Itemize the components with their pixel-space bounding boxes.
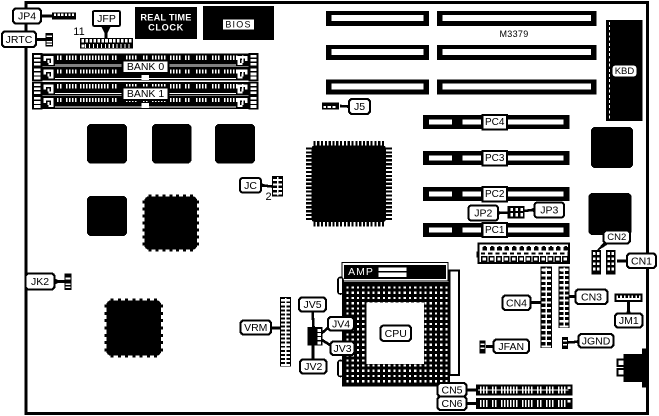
svg-text:VRM: VRM [244, 322, 267, 334]
svg-text:BANK 0: BANK 0 [127, 61, 165, 73]
svg-text:PC3: PC3 [485, 153, 505, 164]
svg-text:CN4: CN4 [506, 297, 527, 309]
svg-text:JFP: JFP [97, 13, 116, 25]
svg-text:REAL TIME: REAL TIME [140, 13, 191, 23]
svg-text:CN2: CN2 [607, 232, 626, 243]
svg-text:JP2: JP2 [474, 208, 492, 220]
svg-text:JV4: JV4 [332, 318, 350, 330]
svg-text:AMP: AMP [348, 266, 374, 278]
svg-text:CN3: CN3 [581, 291, 602, 303]
svg-text:JGND: JGND [582, 335, 611, 347]
svg-text:JC: JC [244, 180, 257, 192]
svg-text:JV2: JV2 [304, 361, 322, 373]
svg-text:CLOCK: CLOCK [148, 23, 184, 33]
svg-text:JK2: JK2 [31, 276, 49, 288]
svg-text:CN6: CN6 [441, 398, 462, 410]
svg-text:2: 2 [265, 191, 271, 203]
svg-text:PC1: PC1 [485, 225, 505, 236]
svg-text:CN1: CN1 [631, 255, 652, 267]
svg-text:JP3: JP3 [540, 205, 558, 217]
svg-text:JRTC: JRTC [6, 34, 33, 46]
svg-text:JV3: JV3 [333, 343, 351, 355]
svg-text:BIOS: BIOS [225, 20, 251, 30]
svg-text:PC2: PC2 [485, 189, 505, 200]
svg-text:M3379: M3379 [499, 29, 528, 39]
svg-text:BANK 1: BANK 1 [127, 88, 165, 100]
svg-text:JM1: JM1 [619, 315, 639, 327]
svg-text:JP4: JP4 [18, 11, 36, 23]
svg-text:11: 11 [73, 26, 84, 38]
svg-text:KBD: KBD [615, 66, 635, 77]
svg-text:JV5: JV5 [303, 299, 321, 311]
svg-text:CN5: CN5 [441, 384, 462, 396]
svg-text:CPU: CPU [385, 328, 407, 340]
svg-text:JFAN: JFAN [498, 341, 524, 353]
svg-text:PC4: PC4 [485, 117, 505, 128]
svg-text:J5: J5 [354, 101, 365, 113]
